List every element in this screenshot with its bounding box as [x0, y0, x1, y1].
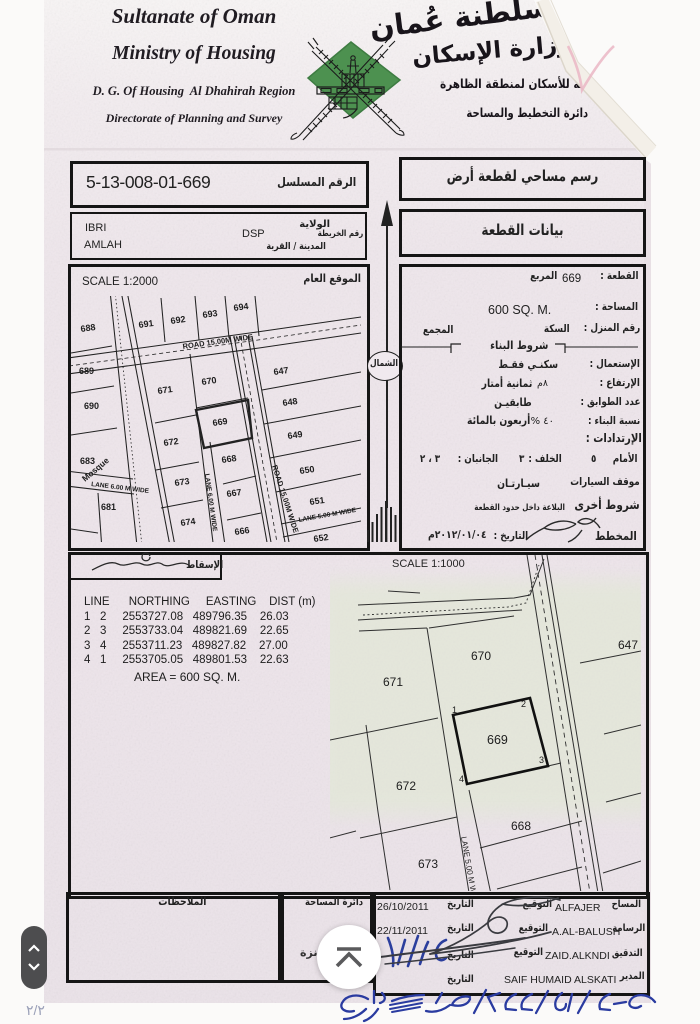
- svg-text:649: 649: [287, 429, 303, 441]
- svg-text:2: 2: [521, 699, 526, 709]
- svg-text:647: 647: [618, 638, 638, 652]
- svg-text:LANE 5.00 M WIDE: LANE 5.00 M WIDE: [459, 836, 480, 891]
- svg-text:671: 671: [157, 384, 173, 396]
- svg-text:651: 651: [309, 495, 325, 507]
- svg-text:4: 4: [459, 774, 464, 784]
- svg-text:694: 694: [233, 301, 249, 313]
- svg-text:LANE 6.00 M WIDE: LANE 6.00 M WIDE: [91, 481, 150, 495]
- svg-text:1: 1: [452, 705, 457, 715]
- svg-text:652: 652: [313, 532, 329, 542]
- svg-text:669: 669: [487, 733, 508, 747]
- svg-text:650: 650: [299, 464, 315, 476]
- svg-text:670: 670: [201, 375, 217, 387]
- svg-text:648: 648: [282, 396, 298, 408]
- svg-text:666: 666: [234, 525, 250, 537]
- svg-text:672: 672: [163, 436, 179, 448]
- svg-text:692: 692: [170, 314, 186, 326]
- svg-text:688: 688: [80, 322, 96, 334]
- svg-text:670: 670: [471, 649, 491, 663]
- svg-text:693: 693: [202, 308, 218, 320]
- svg-text:690: 690: [84, 401, 99, 411]
- svg-text:668: 668: [511, 819, 531, 833]
- svg-text:689: 689: [79, 366, 94, 376]
- svg-text:ROAD 15.00M WIDE: ROAD 15.00M WIDE: [182, 332, 253, 351]
- svg-text:LANE 5.00 M WIDE: LANE 5.00 M WIDE: [298, 507, 357, 524]
- svg-text:669: 669: [212, 416, 228, 428]
- svg-text:681: 681: [101, 502, 116, 512]
- svg-text:691: 691: [138, 318, 154, 330]
- svg-text:673: 673: [174, 476, 190, 488]
- svg-text:671: 671: [383, 675, 403, 689]
- svg-text:647: 647: [273, 365, 289, 377]
- svg-text:667: 667: [226, 487, 242, 499]
- svg-text:672: 672: [396, 779, 416, 793]
- svg-text:668: 668: [221, 453, 237, 465]
- svg-text:673: 673: [418, 857, 438, 871]
- svg-text:3: 3: [539, 755, 544, 765]
- svg-text:674: 674: [180, 516, 196, 528]
